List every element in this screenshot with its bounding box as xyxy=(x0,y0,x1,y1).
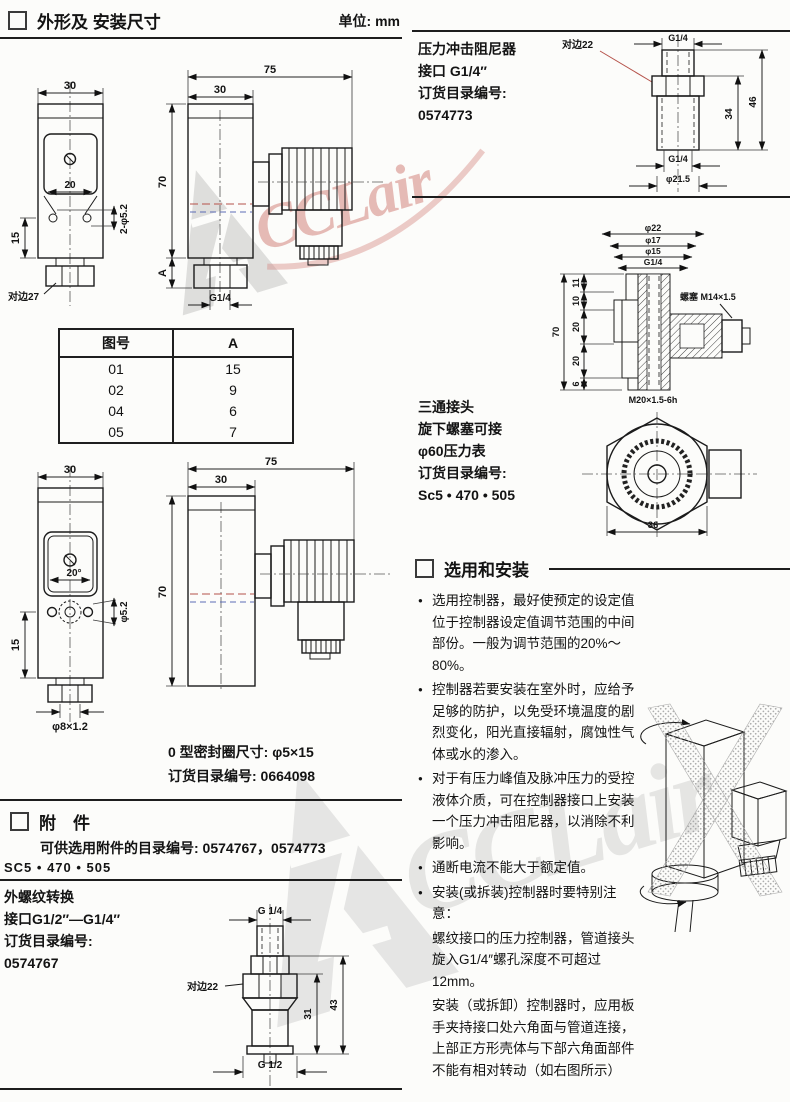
section-checkbox-icon xyxy=(415,559,434,578)
table-row: 02 9 xyxy=(59,379,293,400)
tee-line-4: 订货目录编号: xyxy=(418,462,558,484)
damper-line-2: 接口 G1/4″ xyxy=(418,60,568,82)
tee-plug-label: 螺塞 M14×1.5 xyxy=(680,291,736,302)
tee-line-2: 旋下螺塞可接 xyxy=(418,418,558,440)
section-header-dimensions: 外形及 安装尺寸 单位: mm xyxy=(8,8,400,33)
install-note-2: 安装（或拆卸）控制器时，应用板手夹持接口处六角面与管道连接，上部正方形壳体与下部… xyxy=(418,995,640,1081)
dim2-front-width: 30 xyxy=(64,464,76,476)
table-header-a: A xyxy=(173,329,293,357)
figure-a-table: 图号 A 01 15 02 9 04 6 05 7 xyxy=(58,328,294,444)
cell-a: 15 xyxy=(173,357,293,379)
dim-front-holes: 2-φ5.2 xyxy=(119,204,130,234)
accessories-title: 附 件 xyxy=(39,809,90,834)
oring-size-line: 0 型密封圈尺寸: φ5×15 xyxy=(168,740,315,764)
header-trailing-rule xyxy=(549,568,790,570)
tee-line-1: 三通接头 xyxy=(418,396,558,418)
tee-dim-70: 70 xyxy=(551,327,562,338)
dim-front-15: 15 xyxy=(10,232,22,244)
unit-label: 单位: mm xyxy=(339,11,400,31)
adapter-dim-43: 43 xyxy=(329,999,340,1011)
damper-dim-hex: 对边22 xyxy=(562,38,594,51)
table-row: 04 6 xyxy=(59,400,293,421)
oring-catalog-line: 订货目录编号: 0664098 xyxy=(168,764,315,788)
install-bullet: 控制器若要安装在室外时，应给予足够的防护，以免受环境温度的剧烈变化，阳光直接辐射… xyxy=(418,679,640,765)
damper-dim-dia: φ21.5 xyxy=(666,174,690,184)
tee-line-5: Sc5 • 470 • 505 xyxy=(418,484,558,506)
damper-dim-34: 34 xyxy=(724,108,735,120)
dim-front-hex27: 对边27 xyxy=(8,290,40,303)
dim2-front-hole: φ5.2 xyxy=(119,601,130,622)
dim-side-30: 30 xyxy=(214,84,226,96)
dim2-front-angle: 20° xyxy=(66,568,81,579)
tee-bottom-thread-label: M20×1.5-6h xyxy=(629,395,678,405)
tee-dim-10: 10 xyxy=(571,296,581,306)
tee-text-block: 三通接头 旋下螺塞可接 φ60压力表 订货目录编号: Sc5 • 470 • 5… xyxy=(418,396,558,506)
tee-dim-d15: φ15 xyxy=(645,246,661,256)
adapter-line-2: 接口G1/2″—G1/4″ xyxy=(4,908,184,930)
dim2-side-70: 70 xyxy=(157,586,169,598)
install-note-1: 螺纹接口的压力控制器，管道接头旋入G1/4″螺孔深度不可超过12mm。 xyxy=(418,928,640,993)
damper-line-4: 0574773 xyxy=(418,104,568,126)
dim2-side-75: 75 xyxy=(265,456,277,468)
adapter-dim-bottom-thread: G 1/2 xyxy=(258,1060,283,1071)
tee-dim-d22: φ22 xyxy=(645,223,661,233)
adapter-line-4: 0574767 xyxy=(4,952,184,974)
oring-note: 0 型密封圈尺寸: φ5×15 订货目录编号: 0664098 xyxy=(168,740,315,788)
tee-dim-20a: 20 xyxy=(571,322,581,332)
adapter-dim-top-thread: G 1/4 xyxy=(258,906,283,917)
tee-dim-20b: 20 xyxy=(571,356,581,366)
tee-dim-g14: G1/4 xyxy=(644,257,663,267)
section-title: 外形及 安装尺寸 xyxy=(37,8,161,33)
dim-side-A: A xyxy=(157,269,169,277)
damper-dim-46: 46 xyxy=(748,96,759,108)
table-header-figure: 图号 xyxy=(59,329,173,357)
cell-a: 6 xyxy=(173,400,293,421)
adapter-dim-31: 31 xyxy=(303,1008,314,1020)
do-not-rotate-illustration xyxy=(632,700,790,935)
cell-figure: 04 xyxy=(59,400,173,421)
adapter-text-block: 外螺纹转换 接口G1/2″—G1/4″ 订货目录编号: 0574767 xyxy=(4,886,184,974)
accessories-series-line: SC5 • 470 • 505 xyxy=(4,860,111,875)
rule-under-header xyxy=(0,37,402,39)
section-header-install: 选用和安装 xyxy=(415,556,790,581)
cell-a: 9 xyxy=(173,379,293,400)
damper-dim-top-thread: G1/4 xyxy=(668,33,688,43)
damper-dim-bottom-thread: G1/4 xyxy=(668,154,688,164)
install-text: 选用控制器，最好使预定的设定值位于控制器设定值调节范围的中间部份。一般为调节范围… xyxy=(418,590,640,1084)
dim-front-20: 20 xyxy=(64,180,76,191)
cell-figure: 05 xyxy=(59,421,173,443)
tee-dim-d17: φ17 xyxy=(645,235,661,245)
adapter-line-3: 订货目录编号: xyxy=(4,930,184,952)
table-row: 01 15 xyxy=(59,357,293,379)
dim-side-75: 75 xyxy=(264,64,276,76)
rule-above-adapter xyxy=(0,879,402,881)
dim-front-width: 30 xyxy=(64,80,76,92)
damper-line-3: 订货目录编号: xyxy=(418,82,568,104)
rule-above-accessories xyxy=(0,799,402,801)
table-row: 05 7 xyxy=(59,421,293,443)
damper-drawing: 对边22 G1/4 G1/4 φ21.5 34 46 xyxy=(560,32,786,202)
damper-text-block: 压力冲击阻尼器 接口 G1/4″ 订货目录编号: 0574773 xyxy=(418,38,568,126)
document-page: CCLair CCLair 外形及 安装尺寸 单位: mm 30 20 xyxy=(0,0,790,1102)
tee-dim-11: 11 xyxy=(571,278,581,288)
cell-figure: 02 xyxy=(59,379,173,400)
dim2-side-30: 30 xyxy=(215,474,227,486)
dim-side-thread: G1/4 xyxy=(209,293,231,304)
rule-under-damper xyxy=(412,196,790,198)
cell-a: 7 xyxy=(173,421,293,443)
install-bullet: 选用控制器，最好使预定的设定值位于控制器设定值调节范围的中间部份。一般为调节范围… xyxy=(418,590,640,676)
install-bullet: 安装(或拆装)控制器时要特别注意： xyxy=(418,882,640,925)
section-checkbox-icon xyxy=(8,11,27,30)
dim-side-70: 70 xyxy=(157,176,169,188)
damper-line-1: 压力冲击阻尼器 xyxy=(418,38,568,60)
section-checkbox-icon xyxy=(10,812,29,831)
cell-figure: 01 xyxy=(59,357,173,379)
tee-drawing: φ22 φ17 φ15 G1/4 螺塞 M14×1.5 70 11 10 20 xyxy=(552,222,790,540)
dim2-front-15: 15 xyxy=(10,639,22,651)
rule-bottom-left xyxy=(0,1088,402,1090)
install-bullet: 通断电流不能大于额定值。 xyxy=(418,857,640,879)
tee-line-3: φ60压力表 xyxy=(418,440,558,462)
install-bullet-list: 选用控制器，最好使预定的设定值位于控制器设定值调节范围的中间部份。一般为调节范围… xyxy=(418,590,640,925)
install-title: 选用和安装 xyxy=(444,556,529,581)
section-header-accessories: 附 件 xyxy=(10,809,400,834)
adapter-drawing: G 1/4 对边22 31 43 G 1/2 xyxy=(185,900,400,1090)
accessories-catalog-line: 可供选用附件的目录编号: 0574767，0574773 xyxy=(40,838,326,858)
adapter-dim-hex: 对边22 xyxy=(187,980,219,993)
tee-dim-6: 6 xyxy=(571,381,581,386)
dimension-drawing-2: 30 20° φ5.2 15 φ8×1.2 75 30 xyxy=(8,442,400,736)
dimension-drawing-1: 30 20 2-φ5.2 15 对边27 75 30 70 A xyxy=(8,56,398,320)
adapter-line-1: 外螺纹转换 xyxy=(4,886,184,908)
install-bullet: 对于有压力峰值及脉冲压力的受控液体介质，可在控制器接口上安装一个压力冲击阻尼器，… xyxy=(418,768,640,854)
dim2-front-d8: φ8×1.2 xyxy=(52,721,88,733)
tee-dim-36: 36 xyxy=(648,520,659,531)
